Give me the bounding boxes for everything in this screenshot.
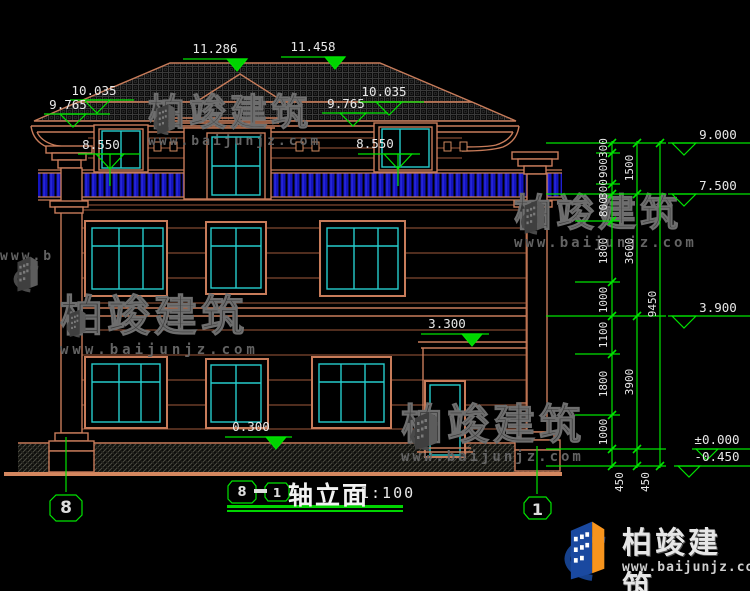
elevation-label: ±0.000 — [686, 433, 748, 447]
elevation-label: 11.286 — [184, 42, 246, 56]
drawing-scale: 1:100 — [360, 484, 415, 502]
dim-label: 1000 — [598, 412, 610, 452]
dim-label: 1800 — [598, 231, 610, 271]
axis-number-left: 8 — [58, 498, 74, 518]
cad-elevation-sheet: 柏竣建筑 www.baijunjz.com 柏竣建筑 www.baijunjz.… — [0, 0, 750, 591]
dim-label: 1800 — [598, 364, 610, 404]
elevation-label: 8.550 — [78, 138, 124, 152]
elevation-label: 9.000 — [690, 128, 746, 142]
elevation-label: 10.035 — [68, 84, 120, 98]
elevation-label: 11.458 — [282, 40, 344, 54]
elevation-label: 7.500 — [690, 179, 746, 193]
title-axis-start: 8 — [234, 485, 250, 500]
brand-url: www.baijunjz.com — [622, 560, 750, 575]
title-dash — [254, 489, 267, 493]
title-axis-end: 1 — [270, 486, 284, 500]
elevation-label: 10.035 — [356, 85, 412, 99]
elevation-label: -0.450 — [686, 450, 748, 464]
elevation-label: 9.765 — [320, 97, 372, 111]
dimension-lines — [44, 57, 750, 521]
dim-label: 3900 — [624, 362, 636, 402]
dim-label: 450 — [614, 462, 626, 502]
dim-label-overall: 9450 — [647, 284, 659, 324]
dim-label: 1500 — [624, 148, 636, 188]
dim-label: 800 — [598, 187, 610, 227]
dim-label: 1000 — [598, 280, 610, 320]
dim-label: 1100 — [598, 315, 610, 355]
brand-logo-icon — [538, 514, 622, 590]
dim-label: 450 — [640, 462, 652, 502]
elevation-markers-facade — [44, 57, 489, 449]
elevation-label: 3.300 — [424, 317, 470, 331]
elevation-label: 8.550 — [352, 137, 398, 151]
elevation-label: 3.900 — [690, 301, 746, 315]
dim-label: 3600 — [624, 231, 636, 271]
elevation-label: 9.765 — [42, 98, 94, 112]
drawing-title: 轴立面 — [288, 476, 369, 512]
brand-name: 柏竣建筑 — [622, 518, 750, 591]
elevation-label: 0.300 — [228, 420, 274, 434]
